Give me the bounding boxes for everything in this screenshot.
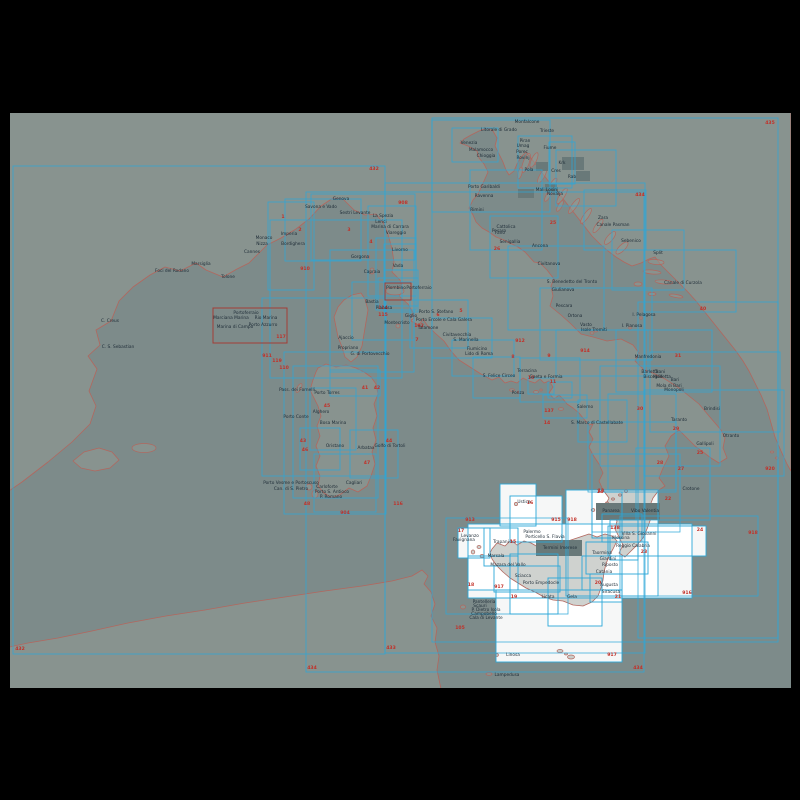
chart-number: 920 [765,466,775,472]
place-label: Foci del Rodano [155,268,189,274]
chart-number: 908 [398,200,408,206]
chart-number: 917 [607,652,617,658]
chart-number: 14 [544,420,550,426]
chart-number: 4 [369,239,372,245]
place-label: Talamone [417,325,439,331]
chart-number: 911 [262,353,272,359]
nautical-chart-index-map: 4324324334344344344359089109119129149139… [0,0,800,800]
inset-dark-rect [576,171,590,181]
chart-number: 434 [307,665,317,671]
chart-number: 918 [567,517,577,523]
place-label: Taormina [591,550,612,556]
chart-number: 40 [700,306,706,312]
place-label: Oristano [326,443,345,449]
place-label: Termini Imerese [542,545,578,551]
chart-number: 435 [765,120,775,126]
place-label: Porto Azzurro [249,322,278,328]
chart-number: 1 [281,214,284,220]
chart-number: 24 [697,527,703,533]
place-label: Gaeta e Formia [530,374,563,380]
place-label: Salerno [577,404,594,410]
chart-number: 918 [748,530,758,536]
place-label: I. Pelagosa [632,312,656,318]
place-label: Split [653,250,663,256]
place-label: S. Marinella [453,337,479,343]
place-label: Canale Pasman [596,222,629,228]
chart-number: 904 [340,510,350,516]
chart-number: 119 [272,358,282,364]
island [132,444,156,453]
chart-number: 115 [378,312,388,318]
place-label: Porto Garibaldi [468,184,500,190]
place-label: Marsiglia [191,261,211,267]
place-label: Bordighera [281,241,305,247]
place-label: Civitanova [538,261,561,267]
place-label: Marsala [488,553,505,559]
place-label: S. Felice Circeo [483,373,516,379]
chart-number: 18 [468,582,474,588]
place-label: Porto S. Stefano [419,309,454,315]
place-label: Sestri Levante [340,210,371,216]
chart-number: 116 [393,501,403,507]
chart-number: 7 [415,337,418,343]
place-label: Porticello S. Flavia [525,534,565,540]
place-label: Rab [568,174,577,180]
place-label: I. Pianosa [622,323,643,329]
chart-number: 910 [300,266,310,272]
place-label: Cres [551,168,561,174]
chart-number: 434 [633,665,643,671]
place-label: Favignana [453,537,475,543]
place-label: Marina di Carrara [371,224,409,230]
map-layer: 4324324334344344344359089109119129149139… [0,112,791,689]
chart-number: 434 [635,192,645,198]
place-label: Lido di Roma [465,351,493,357]
place-label: Montecristo [384,320,410,326]
place-label: Rovinj [516,155,529,161]
chart-number: 23 [641,549,647,555]
chart-number: 5 [459,308,462,314]
place-label: Vibo Valentia [631,508,659,514]
island [771,451,774,453]
chart-number: 46 [302,447,308,453]
place-label: Rio Marina [255,315,278,321]
place-label: S. Marco di Castellabate [571,420,623,426]
place-label: Fiume [544,145,557,151]
place-label: Porto Torres [314,390,340,396]
chart-number: 912 [515,338,525,344]
chart-number: 14 [597,489,603,495]
island [634,282,642,286]
place-label: Viareggio [386,230,407,236]
place-label: La Spezia [373,213,394,219]
chart-catalog-viewer: 4324324334344344344359089109119129149139… [0,0,800,800]
place-label: Augusta [600,582,618,588]
chart-number: 917 [494,584,504,590]
place-label: Lampedusa [495,672,520,678]
chart-number: 432 [369,166,379,172]
place-label: Genova [333,196,350,202]
place-label: Giulianova [552,287,575,293]
place-label: Canale di Curzola [664,280,702,286]
chart-number: 916 [682,590,692,596]
chart-number: 15 [510,539,516,545]
place-label: Siracusa [602,589,621,595]
place-label: Savona e Vado [305,204,337,210]
chart-number: 110 [279,365,289,371]
place-label: Taranto [670,417,687,423]
place-label: Gallipoli [696,441,713,447]
chart-number: 913 [465,517,475,523]
chart-number: 25 [550,220,556,226]
place-label: Venezia [461,140,478,146]
place-label: Cagliari [346,480,362,486]
place-label: Ancona [532,243,548,249]
chart-number: 105 [455,625,465,631]
place-label: Imperia [281,231,298,237]
chart-number: 48 [304,501,310,507]
chart-number: 47 [364,460,370,466]
place-label: Giardini [600,556,617,562]
chart-number: 30 [637,406,643,412]
place-label: Gela [567,594,577,600]
chart-number: 432 [15,646,25,652]
place-label: Krk [558,160,566,166]
chart-number: 9 [547,353,550,359]
place-label: Gorgona [351,254,370,260]
place-label: Ponza [512,390,525,396]
place-label: Riposto [602,562,618,568]
place-label: Molfetta [653,374,671,380]
place-label: Zara [598,215,608,221]
chart-number: 914 [580,348,590,354]
place-label: Novalja [547,191,563,197]
place-label: Pass. dei Fornelli [279,387,315,393]
place-label: Pescara [556,303,573,309]
island [477,546,481,549]
place-label: Chioggia [477,153,496,159]
island [612,498,615,500]
place-label: Crotone [683,486,700,492]
place-label: Pianosa [376,305,393,311]
inset-dark-rect [518,189,534,198]
place-label: Monaco [256,235,273,241]
place-label: Ustica [517,499,531,505]
chart-number: 31 [675,353,681,359]
place-label: Sebenico [621,238,641,244]
place-label: Vada [393,263,404,269]
chart-number: 3 [347,227,350,233]
place-label: Mazara del Vallo [490,562,526,568]
place-label: Litorale di Grado [481,127,517,133]
place-label: G. di Portovecchio [351,351,390,357]
place-label: Pesaro [492,228,507,234]
island [540,389,542,391]
place-label: S. Benedetto del Tronto [547,279,598,285]
chart-number: 27 [678,466,684,472]
place-label: Bari [671,377,680,383]
island [471,550,475,554]
place-label: Otranto [723,433,740,439]
chart-number: 28 [657,460,663,466]
island [619,494,622,496]
place-label: Manfredonia [635,354,662,360]
place-label: Cala di Levante [469,615,503,621]
place-label: Alghero [313,409,330,415]
place-label: Vasto [580,322,592,328]
place-label: Rimini [470,207,483,213]
place-label: Malamocco [469,147,494,153]
place-label: Monopoli [664,387,683,393]
place-label: Ravenna [475,193,494,199]
place-label: Licata [542,594,555,600]
chart-number: 25 [697,450,703,456]
place-label: Porec [516,149,528,155]
island [557,650,563,653]
chart-number: 138 [610,525,620,531]
place-label: Porto Vesme e Portoscuso [263,480,319,486]
place-label: Marciana Marina [213,315,249,321]
place-label: Reggio Calabria [616,543,650,549]
place-label: Bosa Marina [320,420,347,426]
island [461,605,466,609]
chart-number: 137 [544,408,554,414]
chart-number: 915 [551,517,561,523]
place-label: P. Romano [320,494,343,500]
place-label: Golfo di Tortoli [375,443,406,449]
place-label: Porto Empedocle [523,580,560,586]
island [486,673,492,676]
place-label: C. Creus [101,318,120,324]
chart-number: 26 [494,246,500,252]
place-label: Umag [517,143,530,149]
place-label: Porto Conte [283,414,309,420]
place-label: Villa S. Giovanni [622,531,657,537]
place-label: Porto Ercole e Cala Galera [416,317,472,323]
place-label: Senigallia [500,239,521,245]
place-label: Bastia [365,299,379,305]
place-label: Catania [596,569,613,575]
chart-number: 29 [673,426,679,432]
place-label: Ortona [568,313,583,319]
place-label: Can. di S. Pietro [274,486,309,492]
island [559,408,564,411]
place-label: Arbatax [358,445,375,451]
place-label: Trieste [539,128,555,134]
chart-number: 22 [665,496,671,502]
island [568,655,575,659]
place-label: Portoferraio [406,285,432,291]
place-label: Sciacca [515,573,532,579]
chart-number: 41 [362,385,368,391]
place-label: Monfalcone [515,119,540,125]
chart-number: 42 [374,385,380,391]
place-label: Nizza [256,241,268,247]
place-label: Cannes [244,249,261,255]
chart-number: 117 [276,334,286,340]
place-label: Piombino [386,285,406,291]
island [534,391,539,394]
chart-number: 19 [511,594,517,600]
chart-number: 45 [324,403,330,409]
place-label: Pola [525,167,534,173]
place-label: Panarea [602,508,620,514]
place-label: C. S. Sebastian [102,344,135,350]
place-label: Tolone [220,274,235,280]
place-label: Linosa [506,652,520,658]
chart-number: 2 [298,227,301,233]
chart-number: 43 [300,438,306,444]
place-label: Livorno [392,247,408,253]
place-label: Propriano [338,345,359,351]
chart-number: 433 [386,645,396,651]
place-label: Ajaccio [338,335,354,341]
place-label: Capraia [364,269,381,275]
place-label: Trapani [492,539,509,545]
chart-number: 8 [511,354,514,360]
place-label: Terracina [516,368,537,374]
place-label: Brindisi [704,406,720,412]
